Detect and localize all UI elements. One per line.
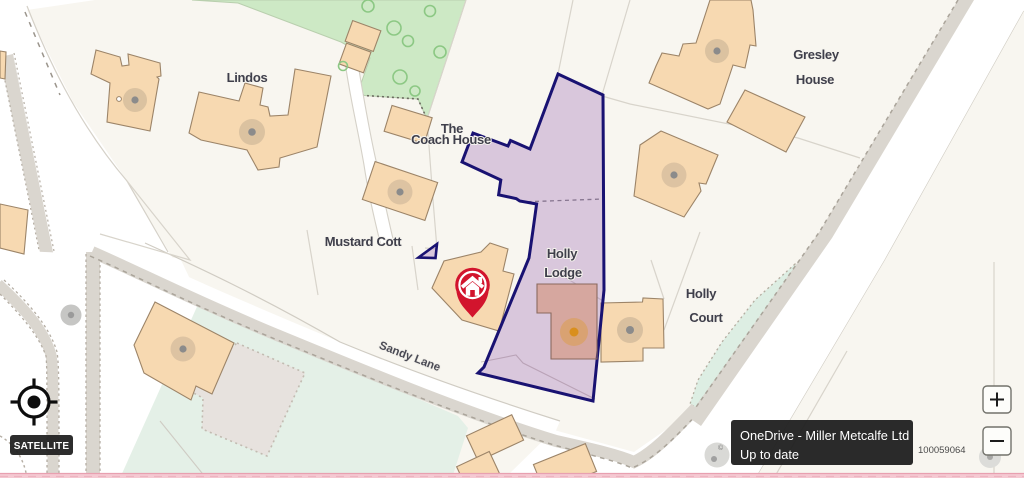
svg-text:Up to date: Up to date [740,447,799,462]
svg-text:100059064: 100059064 [918,445,966,456]
svg-text:©: © [718,444,724,452]
svg-text:Holly: Holly [547,246,578,261]
svg-text:Lodge: Lodge [544,265,582,280]
svg-text:House: House [796,72,834,87]
svg-text:Gresley: Gresley [793,47,840,62]
svg-text:Coach House: Coach House [411,132,491,147]
svg-text:Court: Court [689,310,723,325]
svg-text:Mustard Cott: Mustard Cott [325,234,403,249]
svg-text:Lindos: Lindos [227,70,268,85]
svg-text:SATELLITE: SATELLITE [14,441,70,452]
svg-text:Holly: Holly [686,286,717,301]
svg-text:OneDrive - Miller Metcalfe Ltd: OneDrive - Miller Metcalfe Ltd [740,428,909,443]
